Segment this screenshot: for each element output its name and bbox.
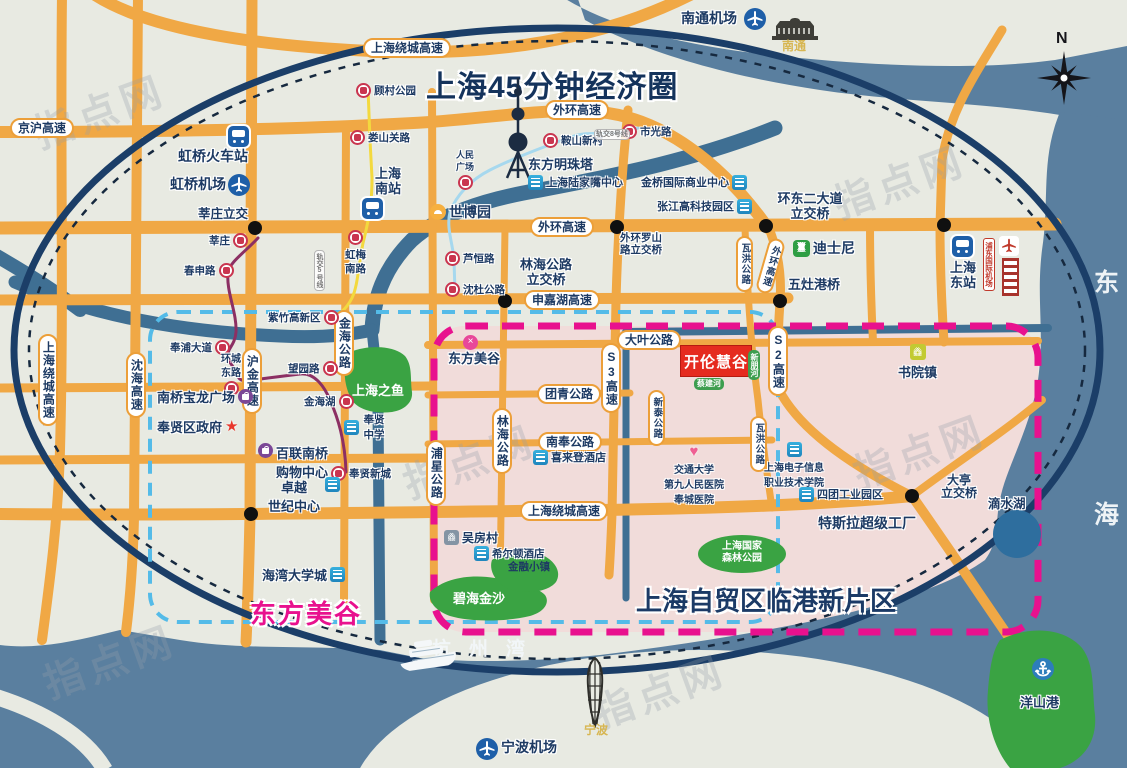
- title-dfmg-zone: 东方美谷: [250, 594, 362, 631]
- label-dating-interchange: 大亭立交桥: [933, 474, 985, 501]
- ningbo-tower-icon: [580, 656, 610, 733]
- metro-icon: [543, 133, 558, 148]
- station-label: 顾村公园: [374, 83, 416, 98]
- shanghai-45min-economic-circle-map: 指点网 指点网 指点网 指点网 指点网 指点网 上海45分钟经济圈 上海自贸区临…: [0, 0, 1127, 768]
- label-line: 海湾大学城: [262, 565, 327, 584]
- label-line: 喜来登酒店: [551, 449, 606, 465]
- label-yangshan-port: 洋山港: [1020, 696, 1059, 711]
- dishui-lake: [993, 510, 1041, 558]
- label-line: 林海公路: [520, 257, 572, 272]
- building-icon: [799, 487, 814, 502]
- gov-star-icon: [225, 419, 238, 434]
- label-nantong-airport: 南通机场: [681, 11, 737, 27]
- metro-icon: [445, 251, 460, 266]
- shop-icon: [258, 443, 273, 458]
- label-east-char: 东: [1094, 263, 1119, 299]
- label-luoshan-interchange: 外环罗山路立交桥: [620, 233, 678, 257]
- pill-waihuan-mid: 外环高速: [530, 217, 594, 237]
- station-label: 金海湖: [304, 394, 336, 409]
- pill-tuanqing-road: 团青公路: [537, 384, 601, 404]
- label-jiuyuan-hospital: 交通大学第九人民医院奉城医院: [664, 444, 724, 506]
- label-ningbo-airport: 宁波机场: [501, 740, 557, 756]
- label-hilton: 希尔顿酒店: [474, 546, 545, 561]
- station-jinhaihu: 金海湖: [304, 394, 354, 409]
- hujin-expressway-road: [246, 0, 252, 642]
- label-shuyuan-town: 书院镇: [898, 344, 937, 381]
- label-line: 南桥宝龙广场: [157, 387, 235, 406]
- metro-icon: [324, 310, 339, 325]
- label-zhangjiang-hitech: 张江高科技园区: [657, 198, 752, 214]
- pill-shenhai: 沈海高速: [126, 352, 146, 418]
- building-icon: [474, 546, 489, 561]
- label-dfmg-small: 东方美谷: [448, 352, 500, 367]
- station-fengxian-new-city: 奉贤新城: [331, 466, 391, 481]
- label-line: 立交桥: [526, 272, 565, 287]
- title-lingang-zone: 上海自贸区临港新片区: [636, 581, 896, 618]
- compass-north-label: N: [1056, 30, 1068, 48]
- station-label: 虹梅: [345, 247, 366, 262]
- label-line: 上海: [375, 166, 401, 181]
- label-expo-park: 世博园: [430, 202, 491, 222]
- label-huandong-interchange: 环东二大道立交桥: [766, 192, 854, 221]
- label-line: 环东二大道: [777, 191, 842, 206]
- label-wufang-village: 吴房村: [444, 529, 498, 546]
- label-line: 世纪中心: [268, 499, 320, 514]
- pill-s2: S2高速: [768, 326, 788, 396]
- label-tesla-factory: 特斯拉超级工厂: [818, 516, 916, 532]
- label-line: 书院镇: [898, 362, 937, 381]
- station-label: 娄山关路: [368, 130, 410, 145]
- station-hongmei-south: 虹梅南路: [345, 230, 366, 276]
- anchor-icon: [1032, 658, 1054, 685]
- building-icon: [732, 175, 747, 190]
- tag-metro-line5: 轨交5号线: [314, 250, 325, 291]
- house-icon: [910, 344, 926, 360]
- label-line: 奉贤区政府: [157, 417, 222, 436]
- metro-icon: [219, 263, 234, 278]
- station-label: 春申路: [184, 263, 216, 278]
- pill-wahong-north: 瓦洪公路: [736, 236, 753, 292]
- label-fengxian-gov: 奉贤区政府: [157, 417, 238, 436]
- label-line: 第九人民医院: [664, 476, 724, 491]
- label-zhuoyue-center: 卓越世纪中心: [266, 477, 340, 515]
- disney-castle-icon: [793, 240, 810, 257]
- label-ningbo: 宁波: [584, 724, 608, 737]
- label-line: 交通大学: [674, 461, 714, 476]
- metro-icon: [350, 130, 365, 145]
- shenjiahu-expressway: [0, 298, 788, 300]
- label-dishui-lake: 滴水湖: [988, 497, 1026, 511]
- label-lujiazui-center: 上海陆家嘴中心: [528, 174, 623, 190]
- label-disney: 迪士尼: [793, 238, 855, 258]
- label-forest-park: 上海国家森林公园: [706, 541, 778, 565]
- label-line: 东站: [950, 275, 976, 290]
- pill-raocheng-north: 上海绕城高速: [363, 38, 451, 58]
- tag-metro-line8: 轨交8号线: [594, 129, 630, 140]
- building-icon: [325, 477, 340, 492]
- compass-icon: [1036, 50, 1092, 111]
- airplane-icon: [228, 174, 250, 201]
- label-line: 百联南桥: [276, 446, 328, 461]
- label-line: 世博园: [449, 202, 491, 222]
- station-label: 紫竹高新区: [268, 310, 321, 325]
- station-label: 奉贤新城: [349, 466, 391, 481]
- hospital-heart-icon: [690, 444, 699, 459]
- outer-ring-mid: [0, 224, 1055, 228]
- label-line: 路立交桥: [620, 244, 662, 256]
- label-line: 吴房村: [462, 529, 498, 546]
- pill-puxing-road: 浦星公路: [426, 440, 446, 506]
- train-station-icon: [362, 198, 383, 219]
- label-line: 大亭: [947, 473, 971, 487]
- label-pudong-airport: 浦东国际机场: [983, 238, 995, 291]
- station-guchun-park: 顾村公园: [356, 83, 416, 98]
- building-icon: [737, 199, 752, 214]
- airplane-icon: [476, 738, 498, 765]
- label-wuzao-bridge: 五灶港桥: [788, 278, 840, 293]
- label-line: 上海电子信息: [764, 459, 824, 474]
- label-line: 中学: [364, 429, 385, 441]
- metro-icon: [356, 83, 371, 98]
- label-hongqiao-railway: 虹桥火车站: [178, 149, 248, 165]
- station-label: 望园路: [288, 361, 320, 376]
- station-chunshen: 春申路: [184, 263, 234, 278]
- station-label: 莘庄: [209, 233, 230, 248]
- metro-icon: [323, 361, 338, 376]
- dfmg-icon: [463, 335, 478, 350]
- station-label: 广场: [456, 160, 474, 173]
- pill-linhai-road: 林海公路: [492, 408, 512, 474]
- metro-icon: [458, 175, 473, 190]
- label-line: 森林公园: [722, 553, 762, 564]
- label-baolong-plaza: 南桥宝龙广场: [157, 387, 253, 406]
- station-label: 奉浦大道: [170, 340, 212, 355]
- label-xinzhuang-interchange: 莘庄立交: [198, 207, 248, 221]
- label-line: 外环罗山: [620, 232, 662, 244]
- building-icon: [330, 567, 345, 582]
- station-shendu-road: 沈杜公路: [445, 282, 505, 297]
- label-line: 上海国家: [722, 541, 762, 552]
- building-icon: [787, 442, 802, 457]
- station-luheng-road: 芦恒路: [445, 251, 495, 266]
- train-station-icon: [952, 236, 973, 257]
- station-renmin-square: 人民广场: [456, 148, 474, 190]
- pill-s3: S3高速: [601, 343, 621, 413]
- station-label: 南路: [345, 261, 366, 276]
- label-dianzi-college: 上海电子信息职业技术学院: [764, 442, 824, 489]
- label-sea-char: 海: [1094, 495, 1119, 531]
- label-jinqiao-center: 金桥国际商业中心: [641, 174, 747, 190]
- airplane-icon: [744, 8, 766, 35]
- metro-icon: [348, 230, 363, 245]
- building-icon: [533, 450, 548, 465]
- building-icon: [528, 175, 543, 190]
- label-line: 奉贤: [364, 414, 385, 426]
- label-line: 迪士尼: [813, 238, 855, 258]
- label-bailian-mall: 百联南桥购物中心: [258, 443, 332, 481]
- station-loushanguan: 娄山关路: [350, 130, 410, 145]
- label-pearl-tower: 东方明珠塔: [528, 158, 593, 173]
- metro-icon: [233, 233, 248, 248]
- label-line: 卓越: [281, 480, 307, 495]
- river-tag-a: 蔡建河: [694, 378, 724, 390]
- river-tag-b: 新朋河: [748, 350, 760, 380]
- label-line: 南站: [375, 181, 401, 196]
- station-zizhu-hitech: 紫竹高新区: [268, 310, 339, 325]
- station-label: 芦恒路: [463, 251, 495, 266]
- station-label: 沈杜公路: [463, 282, 505, 297]
- kailun-huigu-highlight: 开伦慧谷: [680, 345, 752, 377]
- pill-shenjiahu: 申嘉湖高速: [524, 290, 600, 310]
- cruise-ship-icon: [393, 628, 465, 688]
- station-wangyuan: 望园路: [288, 361, 338, 376]
- label-hongqiao-airport: 虹桥机场: [170, 177, 226, 193]
- label-line: 立交桥: [941, 486, 977, 500]
- label-university-town: 海湾大学城: [262, 565, 345, 584]
- label-nantong: 南通: [782, 40, 806, 53]
- label-line: 立交桥: [790, 206, 829, 221]
- label-line: 上海陆家嘴中心: [546, 174, 623, 190]
- pill-raocheng-south: 上海绕城高速: [520, 501, 608, 521]
- railway-track-icon: [1002, 258, 1019, 296]
- label-bihai-jinsha: 碧海金沙: [453, 588, 505, 607]
- label-line: 金桥国际商业中心: [641, 174, 729, 190]
- label-linhai-interchange: 林海公路立交桥: [506, 258, 586, 287]
- label-situan-park: 四团工业园区: [799, 486, 883, 502]
- label-fengxian-school: 奉贤中学: [344, 412, 386, 442]
- station-label: 市光路: [640, 124, 672, 139]
- expo-dome-icon: [430, 204, 446, 220]
- label-line: 奉城医院: [674, 491, 714, 506]
- pill-jinghu-expressway: 京沪高速: [10, 118, 74, 138]
- label-line: 希尔顿酒店: [492, 546, 545, 561]
- train-station-icon: [228, 126, 249, 147]
- label-shanghai-fish: 上海之鱼: [352, 380, 404, 399]
- label-line: 四团工业园区: [817, 486, 883, 502]
- pill-waihuan-north: 外环高速: [545, 100, 609, 120]
- label-line: 上海: [950, 260, 976, 275]
- village-icon: [444, 530, 459, 545]
- metro-icon: [445, 282, 460, 297]
- label-east-station: 上海东站: [946, 261, 980, 290]
- station-label: 环城: [221, 350, 241, 365]
- label-finance-town: 金融小镇: [508, 562, 550, 574]
- shop-icon: [238, 389, 253, 404]
- label-south-station: 上海南站: [371, 167, 405, 196]
- building-icon: [344, 420, 359, 435]
- pill-xintai-road: 新泰公路: [648, 390, 665, 446]
- pill-daye-road: 大叶公路: [617, 330, 681, 350]
- station-label: 东路: [221, 364, 241, 379]
- label-line: 张江高科技园区: [657, 198, 734, 214]
- label-sheraton: 喜来登酒店: [533, 449, 606, 465]
- pill-raocheng-west: 上海绕城高速: [38, 334, 58, 426]
- station-xinzhuang: 莘庄: [209, 233, 248, 248]
